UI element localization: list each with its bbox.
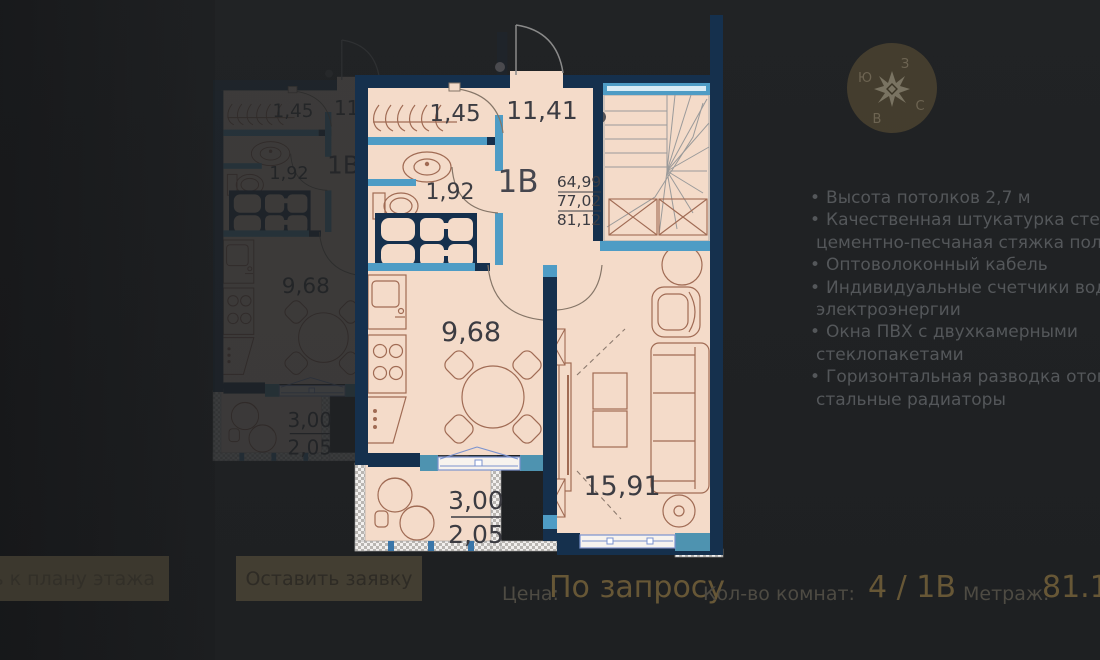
features-list: •Высота потолков 2,7 м •Качественная шту… <box>810 187 1100 411</box>
feature-text: стеклопакетами <box>816 345 964 365</box>
feature-line: •Горизонтальная разводка отоплен <box>810 366 1100 388</box>
feature-text: Индивидуальные счетчики воды, те <box>826 278 1100 298</box>
rooms-value: 4 / 1В <box>868 570 956 605</box>
rooms-label: Кол-во комнат: <box>703 583 855 605</box>
bullet: • <box>810 278 820 298</box>
label-area-nobalcony: 77,02 <box>557 192 601 210</box>
label-kitchen: 9,68 <box>441 317 501 348</box>
label-area-living: 64,99 <box>557 173 601 191</box>
compass-west: З <box>901 57 909 72</box>
feature-line: •Оптоволоконный кабель <box>810 254 1100 276</box>
bathroom-fixtures <box>227 142 289 196</box>
feature-line: •Индивидуальные счетчики воды, те <box>810 277 1100 299</box>
compass-south: Ю <box>858 71 872 86</box>
entrance-door <box>516 25 563 75</box>
feature-text: Горизонтальная разводка отоплен <box>826 367 1100 387</box>
bullet: • <box>810 188 820 208</box>
back-to-floor-plan-button[interactable]: ь к плану этажа <box>0 556 169 601</box>
label-kitchen: 9,68 <box>282 274 330 299</box>
feature-text: стальные радиаторы <box>816 390 1006 410</box>
compass-north: С <box>915 99 924 114</box>
feature-line: цементно-песчаная стяжка полов <box>810 232 1100 254</box>
feature-line: стальные радиаторы <box>810 389 1100 411</box>
feature-text: Оптоволоконный кабель <box>826 255 1048 275</box>
floorplan-svg: 1,45 11,41 1В 64,99 77,02 81,12 1,92 9,6… <box>355 10 725 555</box>
feature-text: Качественная штукатурка стен и <box>826 210 1100 230</box>
compass: З Ю С В <box>846 42 938 134</box>
label-area-total: 81,12 <box>557 211 601 229</box>
bullet: • <box>810 367 820 387</box>
compass-svg: З Ю С В <box>846 42 938 134</box>
feature-text: электроэнергии <box>816 300 961 320</box>
label-hall: 11,41 <box>506 96 578 125</box>
label-wc: 1,92 <box>269 164 308 184</box>
bullet: • <box>810 210 820 230</box>
compass-east: В <box>873 112 882 127</box>
entrance-dot <box>325 70 333 78</box>
coat-hooks <box>227 104 294 125</box>
balcony-door-window <box>279 378 345 396</box>
feature-line: электроэнергии <box>810 299 1100 321</box>
price-value: По запросу <box>549 570 725 605</box>
feature-line: •Качественная штукатурка стен и <box>810 209 1100 231</box>
bullet: • <box>810 322 820 342</box>
area-value: 81.12 <box>1042 570 1100 605</box>
label-flat-type: 1В <box>498 164 539 200</box>
feature-text: Высота потолков 2,7 м <box>826 188 1031 208</box>
bullet: • <box>810 255 820 275</box>
door-jamb <box>449 83 460 91</box>
compass-star-icon <box>874 71 910 107</box>
kitchen-fixtures <box>223 240 364 377</box>
label-balcony-top: 3,00 <box>288 408 333 432</box>
feature-line: стеклопакетами <box>810 344 1100 366</box>
label-wc: 1,92 <box>426 180 475 205</box>
washer-unit <box>375 213 477 269</box>
request-button-label: Оставить заявку <box>245 568 412 590</box>
balcony-furniture <box>229 402 276 452</box>
door-jamb <box>288 86 297 92</box>
floorplan: 1,45 11,41 1В 64,99 77,02 81,12 1,92 9,6… <box>355 10 725 555</box>
entrance-dot <box>495 62 505 72</box>
feature-line: •Высота потолков 2,7 м <box>810 187 1100 209</box>
label-balcony-top: 3,00 <box>448 486 504 515</box>
label-balcony-bottom: 2,05 <box>448 520 504 549</box>
washer-unit <box>229 190 311 235</box>
feature-text: Окна ПВХ с двухкамерными <box>826 322 1078 342</box>
living-window <box>580 535 675 548</box>
label-closet: 1,45 <box>273 101 314 122</box>
label-living: 15,91 <box>583 471 660 502</box>
feature-line: •Окна ПВХ с двухкамерными <box>810 321 1100 343</box>
leave-request-button[interactable]: Оставить заявку <box>236 556 422 601</box>
label-balcony-bottom: 2,05 <box>288 435 333 459</box>
area-label: Метраж: <box>963 583 1049 605</box>
feature-text: цементно-песчаная стяжка полов <box>816 233 1100 253</box>
label-closet: 1,45 <box>429 101 480 127</box>
viewer-stage: 1,45 11,41 1В 64,99 77,02 81,12 1,92 9,6… <box>0 0 1100 660</box>
back-button-label: ь к плану этажа <box>0 568 155 590</box>
